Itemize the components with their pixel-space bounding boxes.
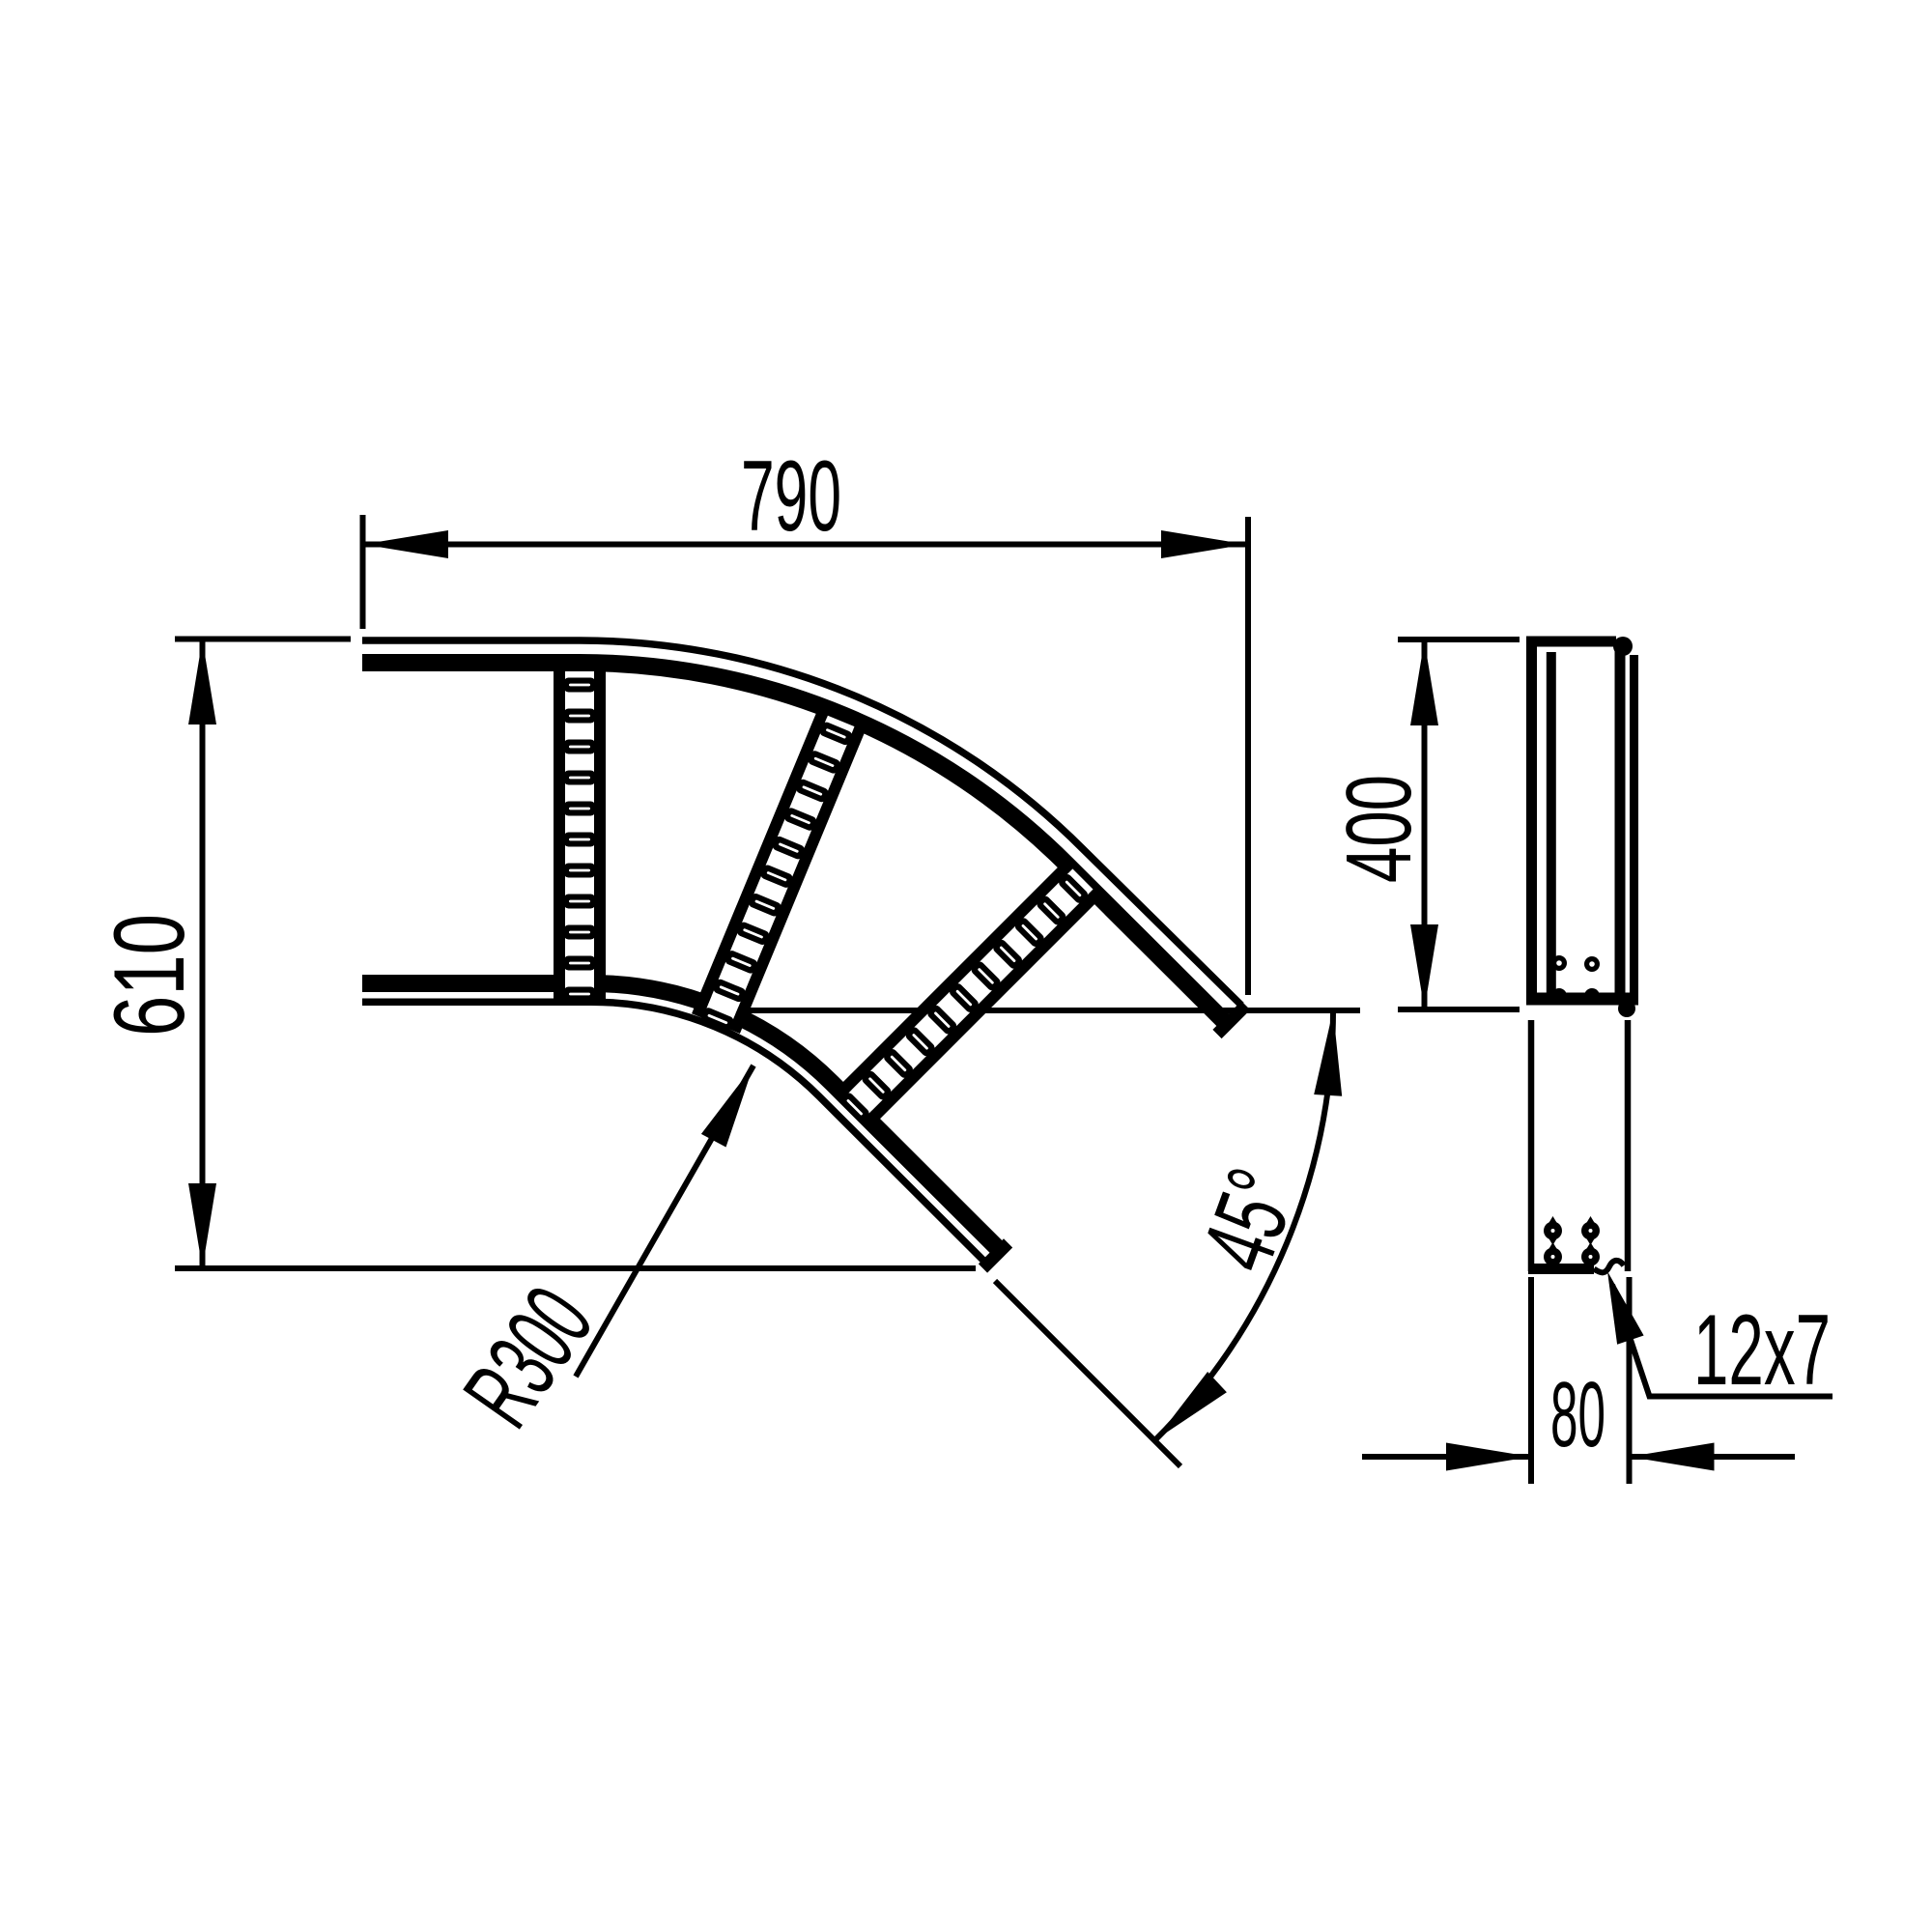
svg-text:610: 610: [94, 914, 206, 1037]
svg-text:400: 400: [1327, 775, 1431, 883]
svg-text:790: 790: [741, 440, 841, 553]
svg-text:12x7: 12x7: [1693, 1294, 1831, 1406]
svg-text:80: 80: [1550, 1363, 1605, 1466]
